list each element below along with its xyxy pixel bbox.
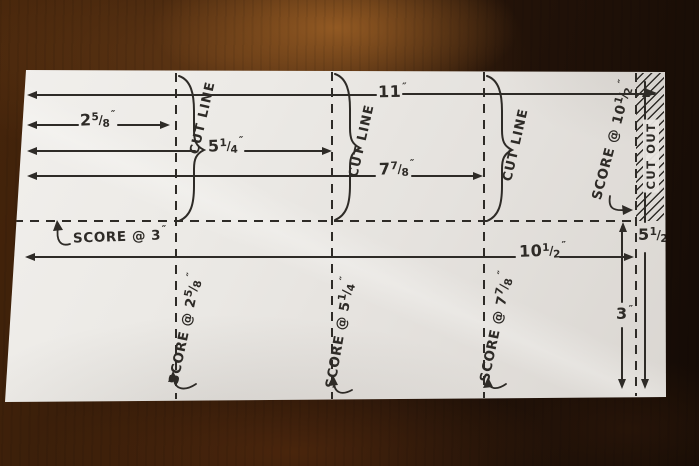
cut-out-label: CUT OUT	[643, 119, 659, 192]
photo-stage: 11″ 25/8″ 51/4″ 77/8″ 101/2″ 3″ 51/2″ SC…	[0, 0, 699, 466]
fraction-denominator: 2	[553, 248, 561, 260]
dimension-whole: 7	[379, 159, 391, 178]
dimension-label-2-5-8: 25/8″	[80, 111, 117, 128]
inch-mark: ″	[629, 304, 634, 315]
fraction: 1/4	[220, 142, 239, 155]
fraction-denominator: 4	[230, 144, 238, 156]
arrowhead-icon	[622, 205, 633, 215]
dimension-label-5-1-4: 51/4″	[208, 137, 245, 154]
score-prefix: SCORE @	[73, 228, 147, 247]
arrowhead-icon	[53, 220, 63, 231]
dimension-whole: 5	[208, 136, 220, 155]
dimension-label-10-1-2: 101/2″	[519, 242, 567, 260]
dimension-whole: 5	[638, 225, 650, 244]
fraction: 1/2	[650, 231, 669, 243]
inch-mark: ″	[239, 135, 244, 146]
fraction: 1/2	[542, 246, 561, 259]
score-label-3: SCORE @3″	[73, 229, 168, 246]
inch-mark: ″	[410, 158, 415, 169]
dimension-label-11: 11″	[378, 84, 408, 101]
dimension-whole: 10	[519, 241, 543, 261]
dimension-whole: 3	[151, 228, 162, 244]
inch-mark: ″	[561, 240, 566, 251]
dimension-label-3: 3″	[616, 306, 634, 322]
inch-mark: ″	[162, 224, 167, 235]
fraction-denominator: 8	[102, 118, 110, 130]
dimension-whole: 3	[616, 304, 628, 323]
inch-mark: ″	[111, 109, 116, 120]
fraction: 1/4	[341, 282, 356, 303]
inch-mark: ″	[402, 82, 407, 93]
dimension-label-7-7-8: 77/8″	[379, 160, 416, 177]
fraction-denominator: 8	[401, 167, 409, 179]
dimension-whole: 11	[378, 82, 402, 101]
dimension-whole: 2	[80, 110, 92, 129]
fraction: 7/8	[391, 165, 410, 178]
fraction: 5/8	[92, 116, 111, 129]
